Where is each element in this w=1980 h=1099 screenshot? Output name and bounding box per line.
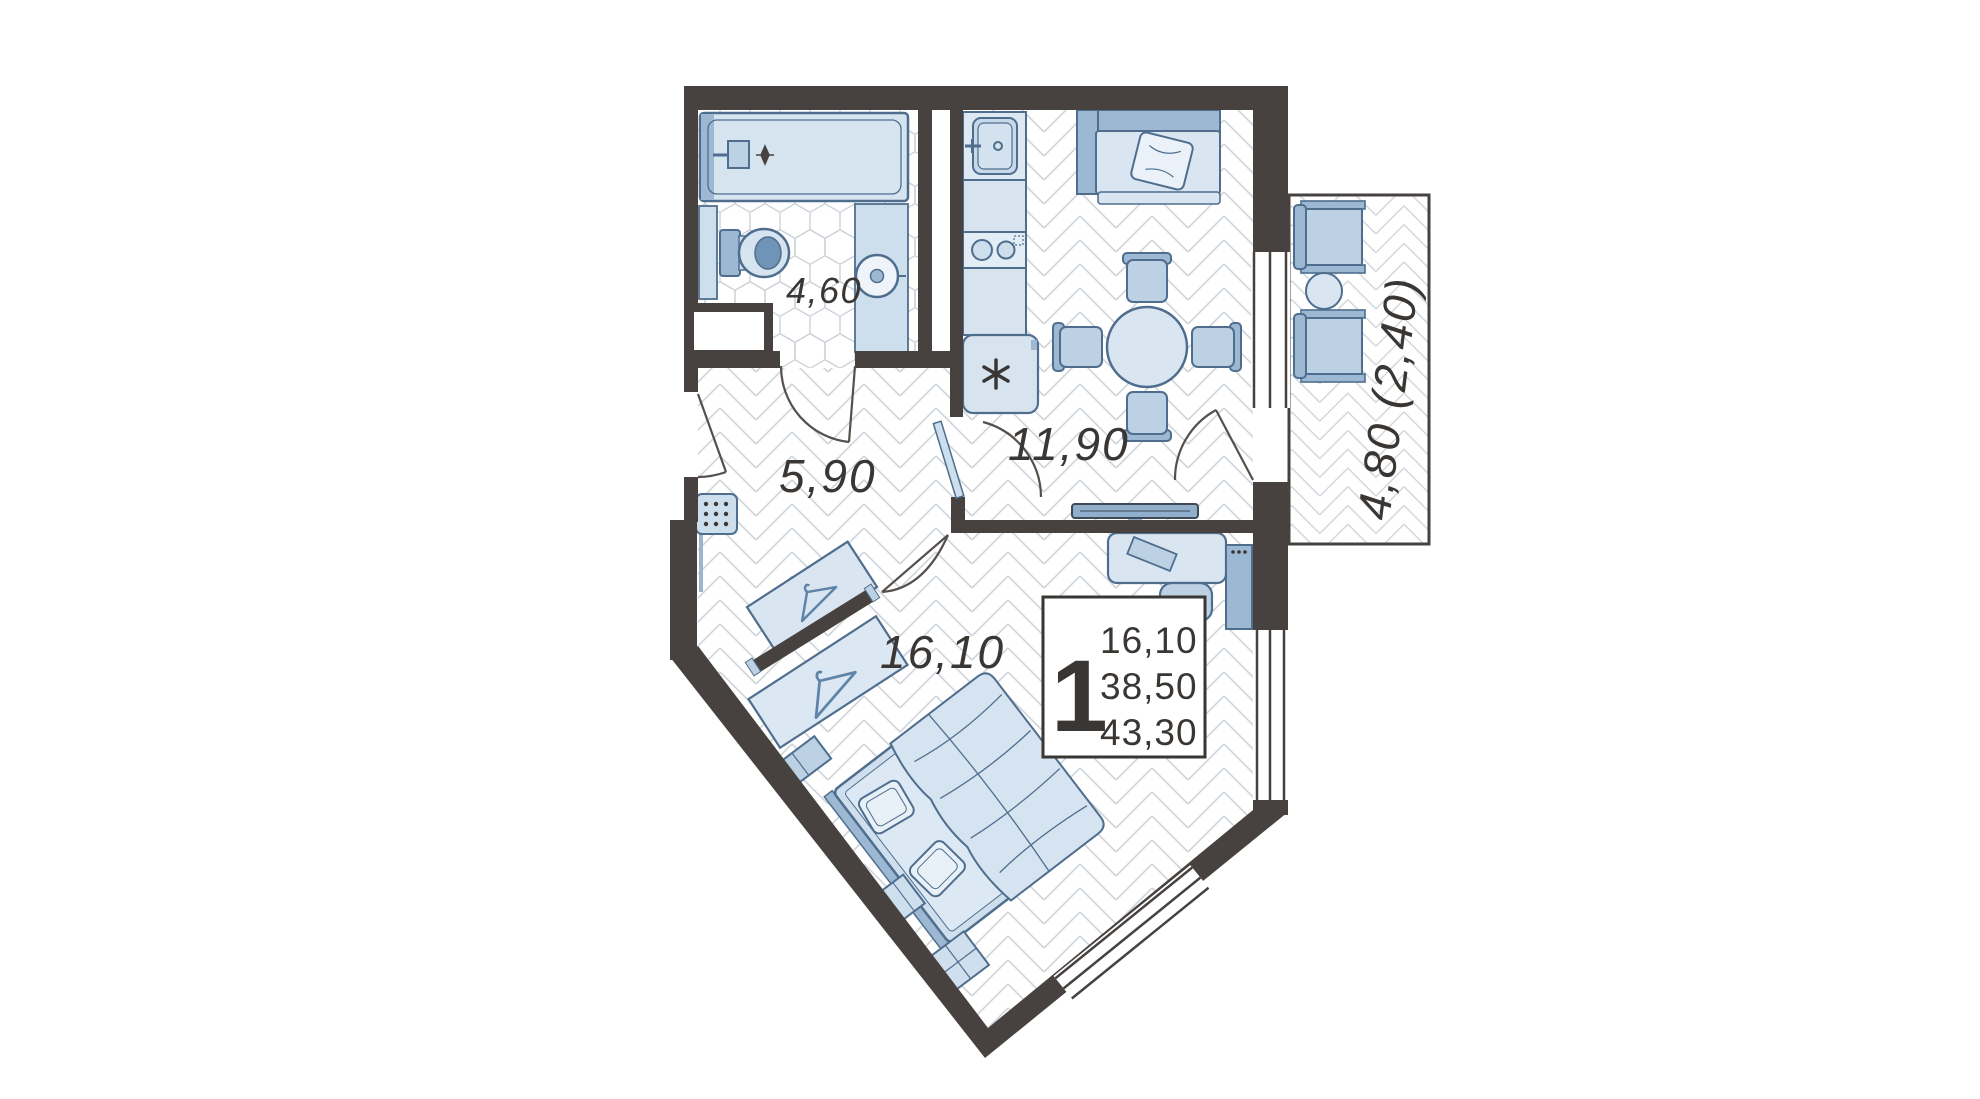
unit-info-badge: 1 16,10 38,50 43,30 [1043, 597, 1205, 757]
dining-chair [1123, 392, 1171, 441]
kitchen-counter-2 [963, 268, 1026, 335]
area-label-hallway: 5,90 [779, 450, 877, 502]
balcony-chair [1294, 310, 1365, 382]
bathtub [700, 113, 908, 201]
bathroom-shelf [699, 206, 717, 299]
floor-plan-page: 4,60 11,90 5,90 16,10 4,80 (2,40) 1 16,1… [0, 0, 1980, 1099]
desk [1108, 533, 1226, 583]
area-label-bedroom: 16,10 [880, 626, 1005, 678]
bedroom-side-window [1253, 630, 1288, 800]
toilet [720, 229, 789, 277]
washing-machine [855, 204, 908, 352]
area-label-kitchen: 11,90 [1008, 418, 1130, 470]
balcony-partition-window [1251, 252, 1290, 408]
kitchen-sink-unit [963, 112, 1026, 180]
tv [1072, 504, 1198, 521]
wall-niche-inner [694, 312, 764, 350]
sofa [1077, 110, 1220, 204]
fridge [963, 335, 1038, 413]
badge-apartment-area: 38,50 [1100, 666, 1198, 707]
dining-chair [1192, 323, 1241, 371]
stove [963, 232, 1026, 268]
dining-table [1107, 307, 1187, 387]
floor-plan: 4,60 11,90 5,90 16,10 4,80 (2,40) 1 16,1… [0, 0, 1980, 1099]
dining-chair [1123, 253, 1171, 302]
badge-living-area: 16,10 [1100, 620, 1198, 661]
kitchen-counter [963, 180, 1026, 232]
dining-chair [1053, 323, 1102, 371]
area-label-bathroom: 4,60 [786, 270, 862, 311]
tall-cabinet [1226, 545, 1252, 629]
balcony-table [1306, 273, 1342, 309]
balcony-chair [1294, 201, 1365, 273]
badge-total-area: 43,30 [1100, 712, 1198, 753]
